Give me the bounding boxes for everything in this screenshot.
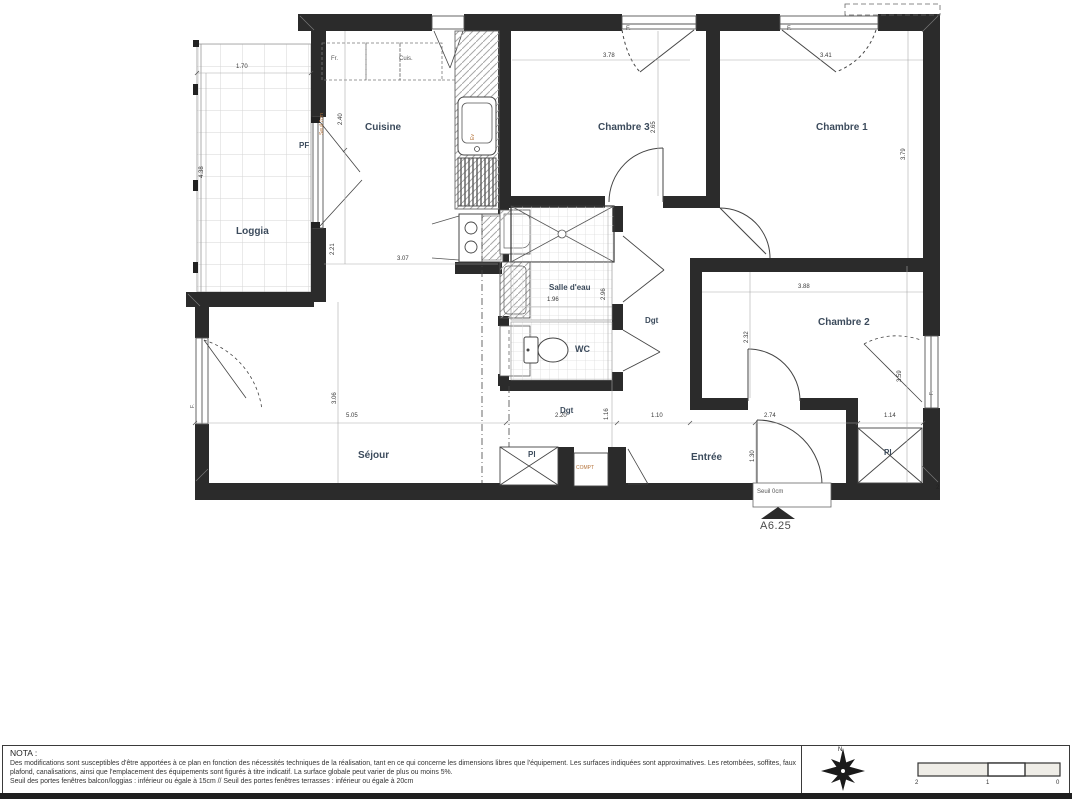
dim-ch3-h: 2.65 — [651, 121, 657, 133]
bottom-border-bar — [0, 793, 1072, 799]
dim-entree-w: 2.74 — [764, 413, 776, 419]
sink-label: Ev — [470, 134, 476, 140]
plan-reference: A6.25 — [760, 520, 791, 532]
room-label-salle-eau: Salle d'eau — [549, 283, 590, 292]
room-label-sejour: Séjour — [358, 450, 389, 461]
dim-ch2-w: 3.88 — [798, 284, 810, 290]
compass-rose-icon — [821, 748, 865, 791]
floorplan-drawing — [0, 0, 1072, 745]
dim-hall-w2: 1.10 — [651, 413, 663, 419]
dim-ch1-w: 3.41 — [820, 53, 832, 59]
dim-hall-h: 1.16 — [604, 408, 610, 420]
balcony-above-outline — [845, 4, 940, 15]
cooker-label: Cuis. — [399, 56, 413, 62]
dim-sejour-h: 3.06 — [332, 392, 338, 404]
door-label-pf: PF — [299, 141, 309, 150]
room-label-entree: Entrée — [691, 452, 722, 463]
dim-ch3-w: 3.78 — [603, 53, 615, 59]
room-label-chambre2: Chambre 2 — [818, 317, 870, 328]
window-label-ch2: F. — [929, 391, 935, 395]
nota-title: NOTA : — [10, 748, 796, 758]
dim-cuisine-w: 3.07 — [397, 256, 409, 262]
wall-corner-number: 2 — [936, 485, 939, 491]
dim-ch1-h: 3.79 — [901, 148, 907, 160]
comp-label: COMPT — [576, 465, 594, 471]
seuil-entree-note: Seuil 0cm — [757, 489, 783, 495]
room-label-loggia: Loggia — [236, 226, 269, 237]
window-label-sejour: F. — [190, 404, 196, 408]
scale-tick-2: 2 — [915, 780, 918, 786]
scale-bar — [918, 763, 1060, 776]
window-label-ch3: F. — [626, 26, 631, 32]
dim-loggia-w: 1.70 — [236, 64, 248, 70]
dim-cuisine-h-top: 2.40 — [338, 113, 344, 125]
floorplan-page: Loggia Cuisine Chambre 3 Chambre 1 Salle… — [0, 0, 1072, 800]
closet-label-right: Pl — [884, 448, 892, 457]
dim-entree-h: 1.30 — [750, 450, 756, 462]
dim-sejour-w: 5.05 — [346, 413, 358, 419]
fridge-label: Fr. — [331, 56, 338, 62]
bathroom — [511, 206, 614, 380]
dim-cuisine-h-bottom: 2.21 — [330, 243, 336, 255]
scale-tick-1: 1 — [986, 780, 989, 786]
seuil-balcon-note: Seuil 7cm — [319, 113, 325, 135]
nota-box: NOTA : Des modifications sont susceptibl… — [2, 745, 804, 797]
dim-ch2-h-left: 2.32 — [744, 331, 750, 343]
room-label-dgt-upper: Dgt — [645, 316, 658, 325]
room-label-chambre3: Chambre 3 — [598, 122, 650, 133]
room-label-chambre1: Chambre 1 — [816, 122, 868, 133]
dim-hall-w: 2.20 — [555, 413, 567, 419]
window-label-ch1: F. — [787, 26, 792, 32]
dim-loggia-h: 4.38 — [199, 166, 205, 178]
room-label-cuisine: Cuisine — [365, 122, 401, 133]
closet-label-center: Pl — [528, 450, 536, 459]
dim-sde-w: 1.96 — [547, 297, 559, 303]
scale-tick-0: 0 — [1056, 780, 1059, 786]
compass-north-label: N — [838, 747, 842, 753]
dim-pl-w: 1.14 — [884, 413, 896, 419]
dim-ch2-h-right: 3.59 — [897, 370, 903, 382]
loggia-area — [193, 40, 311, 292]
nota-body: Des modifications sont susceptibles d'êt… — [10, 759, 796, 777]
nota-seuil-line: Seuil des portes fenêtres balcon/loggias… — [10, 778, 796, 785]
room-label-wc: WC — [575, 344, 590, 354]
dim-sde-h: 2.96 — [601, 288, 607, 300]
